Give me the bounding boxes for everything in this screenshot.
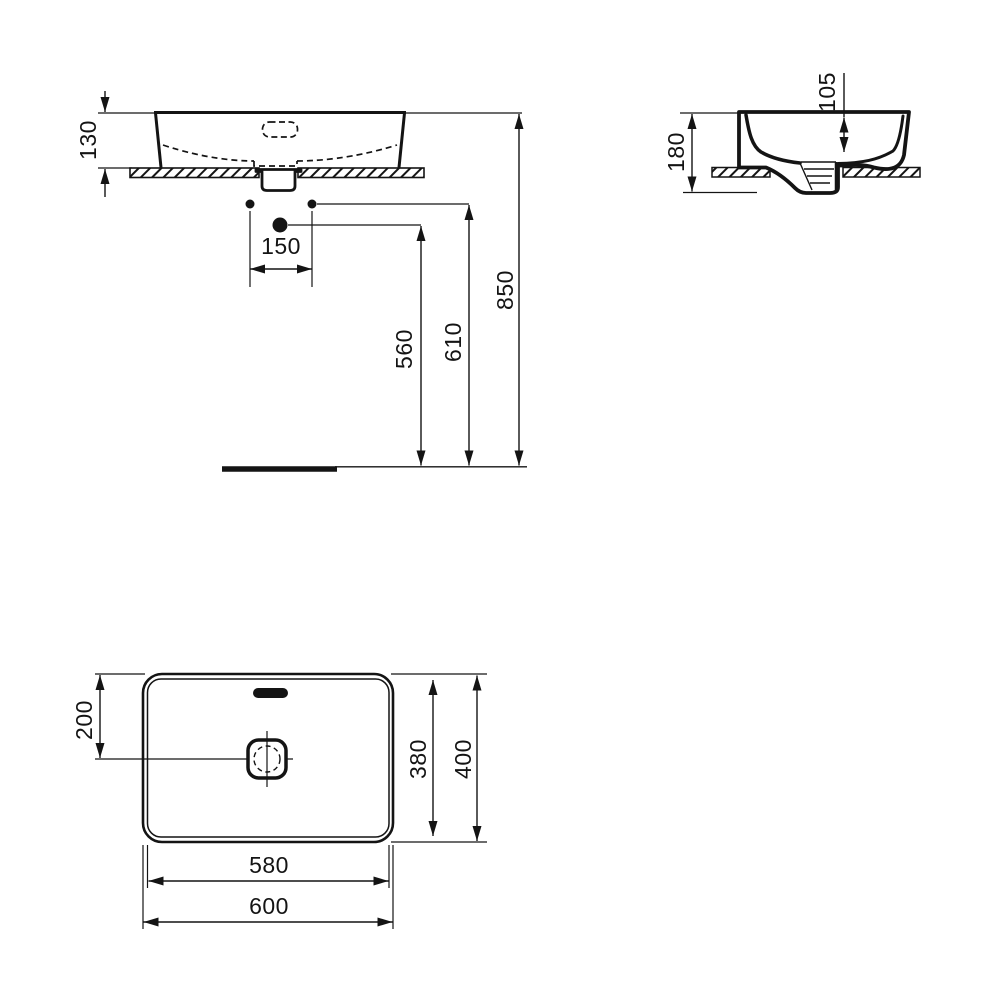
dim-150-label: 150 xyxy=(261,233,301,259)
dim-580-label: 580 xyxy=(249,852,289,878)
drain-point-dot xyxy=(273,218,288,233)
dim-105-label: 105 xyxy=(814,72,840,112)
dim-600-label: 600 xyxy=(249,893,289,919)
washbasin-technical-drawing: 130 150 560 610 850 180 105 xyxy=(0,0,1000,1000)
supply-point-right-dot xyxy=(308,200,317,209)
dim-850-label: 850 xyxy=(492,270,518,310)
dim-200-label: 200 xyxy=(71,700,97,740)
dim-610-label: 610 xyxy=(440,322,466,362)
dim-560-label: 560 xyxy=(391,329,417,369)
front-view xyxy=(98,91,527,469)
technical-drawing-page: 130 150 560 610 850 180 105 xyxy=(0,0,1000,1000)
plan-view xyxy=(95,674,487,929)
dim-180-label: 180 xyxy=(663,132,689,172)
waste-trap-front xyxy=(256,170,301,191)
dim-380-label: 380 xyxy=(405,739,431,779)
dim-130-label: 130 xyxy=(75,120,101,160)
overflow-slot xyxy=(253,688,288,698)
side-view xyxy=(680,73,920,193)
counter-hatch-left xyxy=(130,168,259,178)
supply-point-left-dot xyxy=(246,200,255,209)
dim-400-label: 400 xyxy=(450,739,476,779)
counter-hatch-right xyxy=(298,168,424,178)
